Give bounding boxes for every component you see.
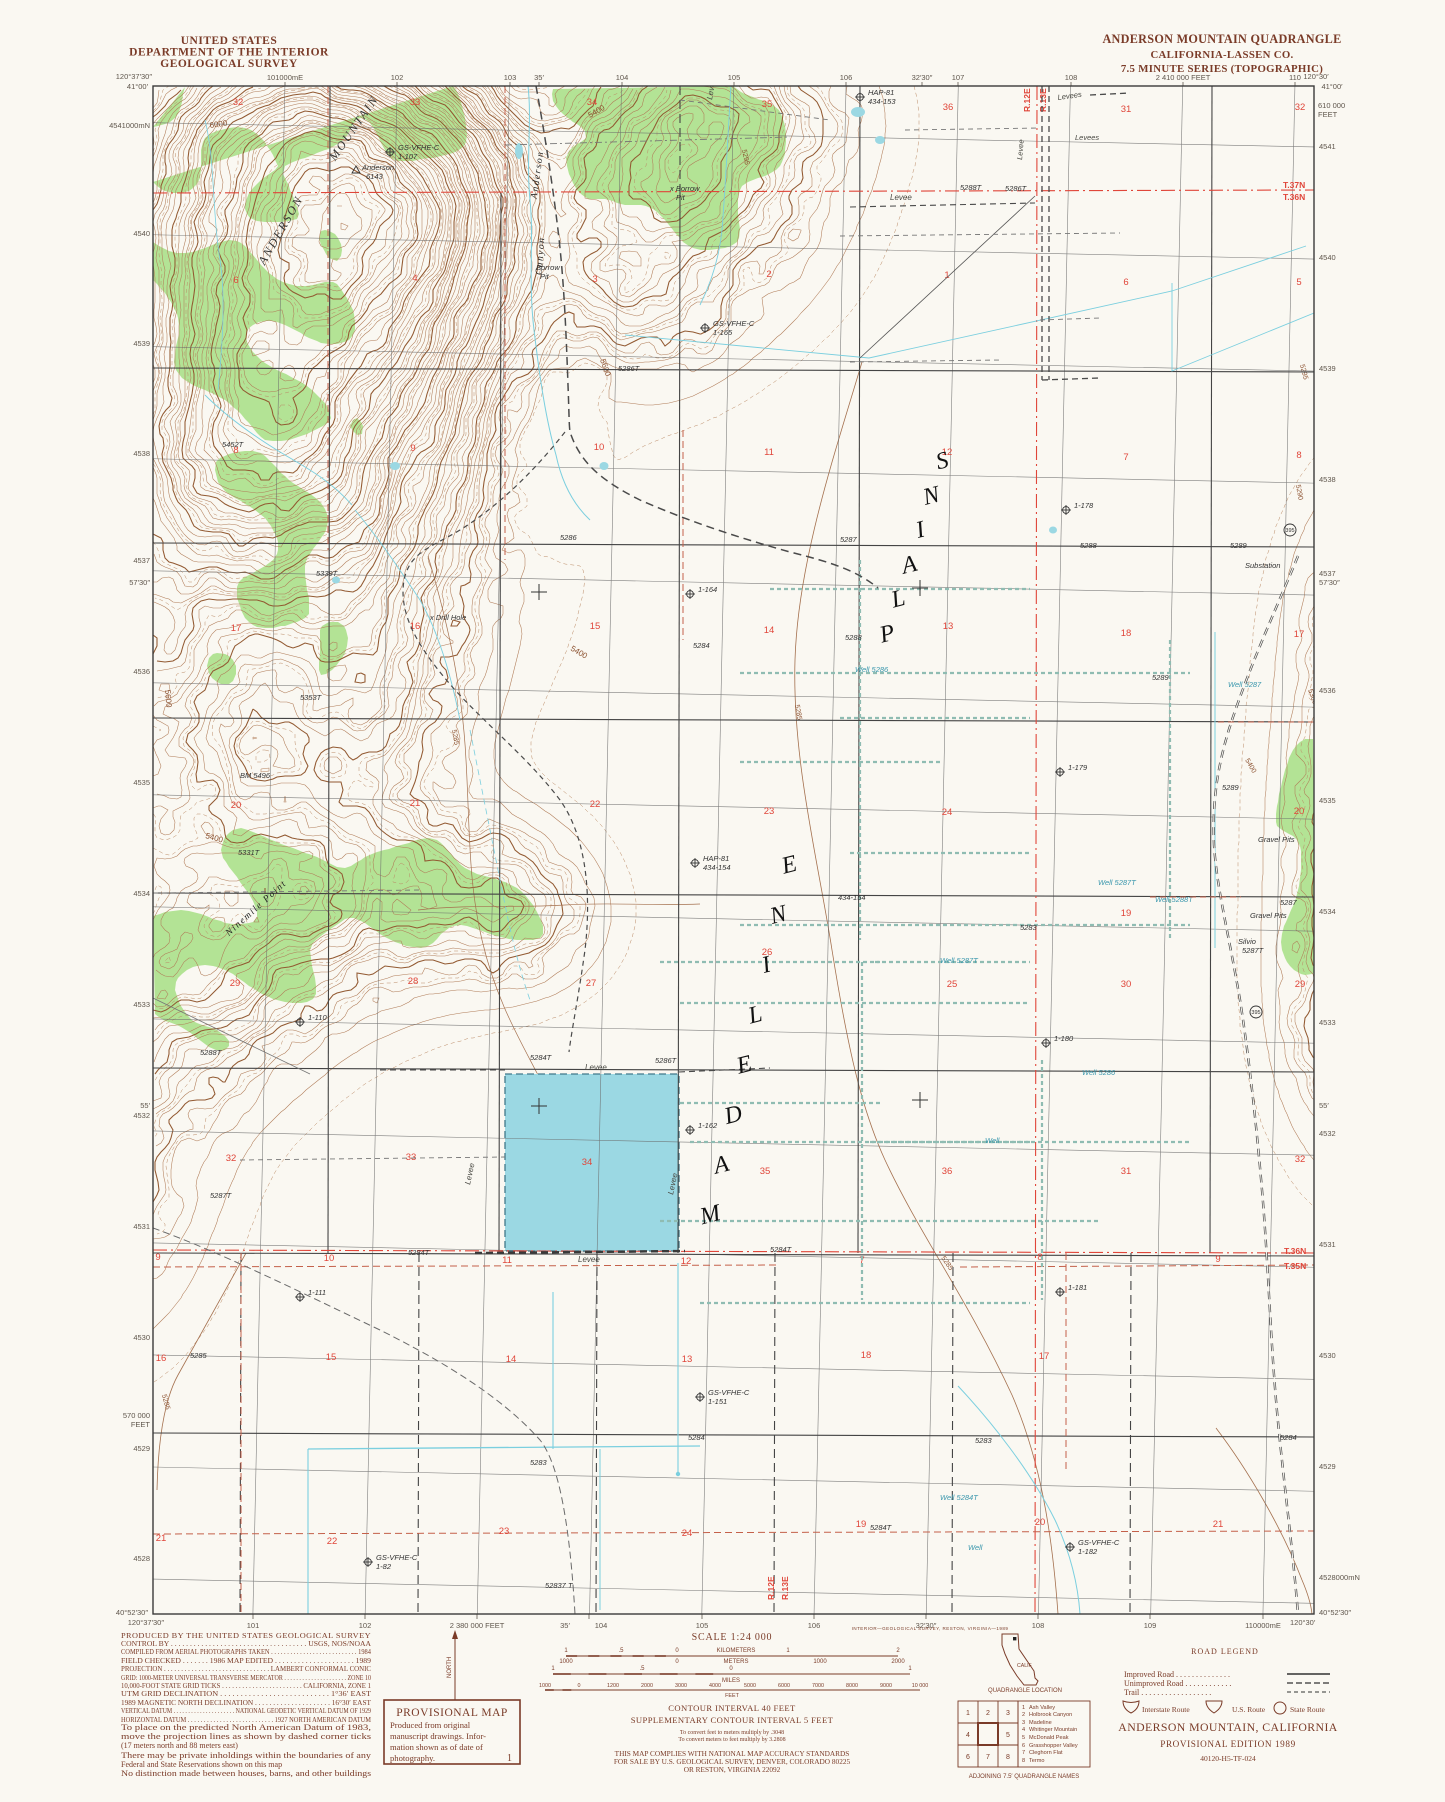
svg-text:6143: 6143 (366, 172, 384, 181)
svg-text:102: 102 (391, 73, 404, 82)
svg-text:5287: 5287 (1280, 898, 1298, 907)
svg-text:4540: 4540 (1319, 253, 1336, 262)
svg-text:3: 3 (1006, 1710, 1010, 1717)
svg-text:Levee: Levee (578, 1255, 600, 1264)
svg-text:Well 5288T: Well 5288T (1155, 895, 1194, 904)
svg-text:7: 7 (1022, 1750, 1025, 1756)
svg-text:434-153: 434-153 (868, 97, 896, 106)
svg-text:There may be private inholding: There may be private inholdings within t… (121, 1751, 371, 1760)
svg-text:4536: 4536 (1319, 686, 1336, 695)
svg-text:5289: 5289 (1222, 783, 1240, 792)
svg-text:MILES: MILES (722, 1678, 740, 1684)
svg-text:T.35N: T.35N (1284, 1261, 1306, 1271)
svg-text:2 380 000 FEET: 2 380 000 FEET (450, 1621, 505, 1630)
svg-text:Well 5284T: Well 5284T (940, 1493, 979, 1502)
svg-text:1-111: 1-111 (308, 1288, 326, 1297)
svg-text:5285: 5285 (190, 1351, 208, 1360)
svg-text:GS-VFHE-C: GS-VFHE-C (376, 1553, 418, 1562)
svg-text:T.37N: T.37N (1283, 180, 1305, 190)
svg-text:CALIFORNIA-LASSEN CO.: CALIFORNIA-LASSEN CO. (1150, 49, 1293, 61)
svg-text:1-162: 1-162 (698, 1121, 718, 1130)
svg-text:4529: 4529 (1319, 1462, 1336, 1471)
svg-text:photography.: photography. (390, 1753, 435, 1763)
svg-text:x Drill Hole: x Drill Hole (429, 613, 466, 622)
svg-text:110000mE: 110000mE (1245, 1621, 1281, 1630)
svg-text:To convert meters to feet mult: To convert meters to feet multiply by 3.… (678, 1736, 785, 1743)
svg-text:6000: 6000 (778, 1683, 790, 1689)
svg-text:T.36N: T.36N (1283, 192, 1305, 202)
svg-text:mation shown as of date of: mation shown as of date of (390, 1742, 483, 1752)
svg-text:5283: 5283 (530, 1458, 548, 1467)
svg-text:40°52′30″: 40°52′30″ (116, 1608, 148, 1617)
svg-text:Holbrook Canyon: Holbrook Canyon (1029, 1712, 1072, 1718)
svg-text:20: 20 (1294, 806, 1305, 817)
svg-text:5286T: 5286T (1005, 184, 1028, 193)
svg-text:x Borrow: x Borrow (669, 184, 700, 193)
svg-text:Interstate Route: Interstate Route (1142, 1705, 1190, 1714)
svg-text:1-180: 1-180 (1054, 1034, 1074, 1043)
svg-text:10: 10 (324, 1253, 335, 1264)
svg-text:5284T: 5284T (870, 1523, 893, 1532)
svg-text:395: 395 (1285, 528, 1294, 534)
svg-text:Borrow: Borrow (536, 263, 560, 272)
svg-text:No distinction made between ho: No distinction made between houses, barn… (121, 1769, 371, 1778)
svg-text:HAP-81: HAP-81 (703, 854, 729, 863)
svg-text:40120-H5-TF-024: 40120-H5-TF-024 (1200, 1754, 1256, 1763)
svg-text:104: 104 (616, 73, 629, 82)
svg-text:5286T: 5286T (655, 1056, 678, 1065)
svg-text:5288T: 5288T (960, 183, 983, 192)
svg-text:18: 18 (1121, 628, 1132, 639)
svg-text:2000: 2000 (891, 1659, 905, 1665)
svg-text:35: 35 (760, 1166, 771, 1177)
svg-text:22: 22 (590, 799, 601, 810)
svg-text:2: 2 (766, 269, 771, 280)
svg-text:33: 33 (410, 97, 421, 108)
svg-text:22: 22 (327, 1536, 338, 1547)
svg-text:UNITED STATES: UNITED STATES (181, 35, 278, 47)
svg-text:1-151: 1-151 (708, 1397, 727, 1406)
svg-text:4: 4 (966, 1732, 970, 1739)
svg-text:101000mE: 101000mE (267, 73, 303, 82)
svg-text:18: 18 (861, 1350, 872, 1361)
svg-text:16: 16 (156, 1353, 167, 1364)
svg-text:1-179: 1-179 (1068, 763, 1088, 772)
svg-text:GRID: 1000-METER UNIVERSAL TRA: GRID: 1000-METER UNIVERSAL TRANSVERSE ME… (121, 1675, 372, 1682)
svg-text:3000: 3000 (675, 1683, 687, 1689)
svg-text:4529: 4529 (133, 1444, 150, 1453)
svg-text:4535: 4535 (1319, 796, 1336, 805)
svg-text:GS-VFHE-C: GS-VFHE-C (398, 143, 440, 152)
svg-text:570 000: 570 000 (123, 1411, 150, 1420)
svg-text:5284T: 5284T (408, 1248, 431, 1257)
svg-text:106: 106 (808, 1621, 821, 1630)
svg-text:4: 4 (1022, 1727, 1025, 1733)
svg-text:5000: 5000 (744, 1683, 756, 1689)
svg-text:(17 meters north and 88 meters: (17 meters north and 88 meters east) (121, 1741, 238, 1750)
svg-text:1-165: 1-165 (713, 328, 733, 337)
svg-text:0: 0 (578, 1683, 581, 1689)
svg-text:13: 13 (943, 621, 954, 632)
svg-text:manuscript drawings. Infor-: manuscript drawings. Infor- (390, 1731, 486, 1741)
svg-text:Ash Valley: Ash Valley (1029, 1705, 1055, 1711)
svg-text:Well 5287T: Well 5287T (1098, 878, 1137, 887)
svg-text:57′30″: 57′30″ (129, 578, 150, 587)
svg-text:33: 33 (406, 1152, 417, 1163)
svg-text:6: 6 (233, 275, 238, 286)
svg-text:4000: 4000 (709, 1683, 721, 1689)
svg-text:GS-VFHE-C: GS-VFHE-C (713, 319, 755, 328)
svg-text:11: 11 (502, 1255, 512, 1266)
svg-text:4537: 4537 (133, 556, 150, 565)
svg-text:1-182: 1-182 (1078, 1547, 1098, 1556)
svg-text:QUADRANGLE LOCATION: QUADRANGLE LOCATION (988, 1688, 1062, 1694)
svg-text:34: 34 (587, 97, 598, 108)
svg-text:27: 27 (586, 978, 597, 989)
svg-text:5283: 5283 (975, 1436, 993, 1445)
svg-text:3: 3 (1022, 1720, 1025, 1726)
svg-text:Grasshopper Valley: Grasshopper Valley (1029, 1743, 1078, 1749)
svg-text:5283: 5283 (1020, 923, 1038, 932)
svg-text:PROVISIONAL EDITION 1989: PROVISIONAL EDITION 1989 (1160, 1739, 1296, 1749)
svg-text:13: 13 (682, 1354, 693, 1365)
svg-text:5: 5 (1296, 277, 1301, 288)
svg-text:21: 21 (1213, 1519, 1224, 1530)
svg-text:5600: 5600 (163, 689, 174, 708)
svg-text:395: 395 (1251, 1010, 1260, 1016)
svg-text:15: 15 (590, 621, 601, 632)
svg-text:U.S. Route: U.S. Route (1232, 1705, 1266, 1714)
svg-text:107: 107 (952, 73, 965, 82)
svg-text:R.12E: R.12E (1022, 88, 1032, 112)
svg-text:CONTROL BY . . . . . . . . . .: CONTROL BY . . . . . . . . . . . . . . .… (121, 1641, 371, 1648)
svg-text:State Route: State Route (1290, 1705, 1325, 1714)
svg-text:BM 5496: BM 5496 (240, 771, 271, 780)
svg-text:34: 34 (582, 1157, 593, 1168)
svg-text:To convert feet to meters mult: To convert feet to meters multiply by .3… (680, 1729, 784, 1736)
svg-text:23: 23 (499, 1526, 510, 1537)
svg-text:20: 20 (231, 800, 242, 811)
svg-text:Silvio: Silvio (1238, 937, 1256, 946)
svg-text:Gravel Pits: Gravel Pits (1250, 911, 1287, 920)
svg-text:SCALE 1:24 000: SCALE 1:24 000 (692, 1632, 773, 1643)
svg-text:6: 6 (1022, 1743, 1025, 1749)
svg-text:32: 32 (226, 1153, 237, 1164)
svg-text:35′: 35′ (534, 73, 544, 82)
svg-text:14: 14 (506, 1354, 517, 1365)
svg-text:25: 25 (947, 979, 958, 990)
svg-text:120°30′: 120°30′ (1303, 72, 1329, 81)
svg-text:41°00′: 41°00′ (127, 82, 149, 91)
svg-text:Trail . . . . . . . . . . . .: Trail . . . . . . . . . . . . . . . . . … (1124, 1688, 1211, 1697)
svg-text:8000: 8000 (846, 1683, 858, 1689)
svg-text:PROJECTION . . . . . . . . . .: PROJECTION . . . . . . . . . . . . . . .… (121, 1666, 371, 1673)
svg-text:29: 29 (230, 978, 241, 989)
svg-text:Substation: Substation (1245, 561, 1280, 570)
svg-text:31: 31 (1121, 1166, 1132, 1177)
svg-text:14: 14 (764, 625, 775, 636)
svg-text:FIELD CHECKED . . . . . . . 19: FIELD CHECKED . . . . . . . 1986 MAP EDI… (121, 1658, 372, 1665)
svg-text:55′: 55′ (1319, 1101, 1329, 1110)
svg-text:CALIF: CALIF (1017, 1663, 1032, 1669)
svg-text:1000: 1000 (559, 1659, 573, 1665)
svg-text:120°30′: 120°30′ (1290, 1618, 1316, 1627)
svg-text:21: 21 (410, 798, 421, 809)
svg-text:5284: 5284 (1280, 1433, 1297, 1442)
svg-text:4533: 4533 (133, 1000, 150, 1009)
svg-text:4535: 4535 (133, 778, 150, 787)
svg-text:CONTOUR INTERVAL 40 FEET: CONTOUR INTERVAL 40 FEET (668, 1703, 796, 1713)
svg-text:23: 23 (764, 806, 775, 817)
svg-text:4536: 4536 (133, 667, 150, 676)
svg-text:17: 17 (1294, 629, 1305, 640)
svg-text:ADJOINING 7.5′ QUADRANGLE NAME: ADJOINING 7.5′ QUADRANGLE NAMES (969, 1774, 1079, 1780)
svg-text:10: 10 (594, 442, 605, 453)
svg-text:120°37′30″: 120°37′30″ (128, 1618, 165, 1627)
svg-text:101: 101 (247, 1621, 260, 1630)
svg-text:4528: 4528 (133, 1554, 150, 1563)
svg-text:Levee: Levee (1015, 139, 1026, 160)
svg-text:Well 5286: Well 5286 (1082, 1068, 1116, 1077)
svg-text:4541000mN: 4541000mN (109, 121, 150, 130)
svg-text:20: 20 (1035, 1517, 1046, 1528)
svg-text:31: 31 (1121, 104, 1132, 115)
svg-text:4539: 4539 (133, 339, 150, 348)
svg-text:Levees: Levees (1075, 133, 1099, 142)
svg-text:103: 103 (504, 73, 517, 82)
svg-text:1-107: 1-107 (398, 152, 418, 161)
svg-text:1: 1 (966, 1710, 970, 1717)
svg-text:GS-VFHE-C: GS-VFHE-C (1078, 1538, 1120, 1547)
svg-text:35′: 35′ (560, 1621, 570, 1630)
svg-text:32: 32 (1295, 102, 1306, 113)
svg-text:30: 30 (1121, 979, 1132, 990)
svg-text:5: 5 (1006, 1732, 1010, 1739)
svg-text:R.12E: R.12E (766, 1576, 776, 1600)
svg-text:VERTICAL DATUM . . . . . . . .: VERTICAL DATUM . . . . . . . . . . . . .… (121, 1708, 372, 1715)
svg-text:Anderson: Anderson (361, 163, 394, 172)
svg-text:4528000mN: 4528000mN (1319, 1573, 1360, 1582)
svg-text:9: 9 (410, 443, 415, 454)
svg-text:5288: 5288 (1080, 541, 1098, 550)
svg-text:4532: 4532 (1319, 1129, 1336, 1138)
svg-text:Well 5286: Well 5286 (855, 665, 889, 674)
svg-text:32′30″: 32′30″ (912, 73, 933, 82)
svg-text:1000: 1000 (813, 1659, 827, 1665)
svg-text:METERS: METERS (723, 1659, 748, 1665)
svg-text:ANDERSON MOUNTAIN QUADRANGLE: ANDERSON MOUNTAIN QUADRANGLE (1102, 32, 1341, 46)
svg-text:4538: 4538 (133, 449, 150, 458)
svg-text:7000: 7000 (812, 1683, 824, 1689)
svg-text:2000: 2000 (641, 1683, 653, 1689)
svg-text:24: 24 (682, 1528, 693, 1539)
svg-text:4531: 4531 (133, 1222, 150, 1231)
svg-text:5289: 5289 (1230, 541, 1248, 550)
svg-text:5452T: 5452T (222, 440, 245, 449)
svg-text:Levee: Levee (890, 193, 912, 202)
svg-text:NORTH: NORTH (447, 1657, 453, 1678)
svg-text:35: 35 (762, 99, 773, 110)
svg-text:SUPPLEMENTARY CONTOUR INTERVAL: SUPPLEMENTARY CONTOUR INTERVAL 5 FEET (631, 1715, 834, 1725)
svg-text:1200: 1200 (607, 1683, 619, 1689)
svg-text:104: 104 (595, 1621, 608, 1630)
svg-text:21: 21 (156, 1533, 167, 1544)
svg-text:.5: .5 (618, 1648, 624, 1654)
svg-text:GEOLOGICAL SURVEY: GEOLOGICAL SURVEY (160, 58, 298, 70)
svg-text:4530: 4530 (133, 1333, 150, 1342)
svg-text:HAP-81: HAP-81 (868, 88, 894, 97)
svg-text:8: 8 (1022, 1758, 1025, 1764)
svg-text:GS-VFHE-C: GS-VFHE-C (708, 1388, 750, 1397)
svg-text:7: 7 (986, 1754, 990, 1761)
svg-text:Unimproved Road . . . . . . .: Unimproved Road . . . . . . . . . . . . (1124, 1679, 1231, 1688)
svg-text:4534: 4534 (1319, 907, 1336, 916)
svg-text:FEET: FEET (725, 1693, 739, 1699)
svg-text:41°00′: 41°00′ (1321, 82, 1343, 91)
svg-text:Pit: Pit (540, 272, 550, 281)
svg-text:4: 4 (412, 273, 417, 284)
svg-text:5284T: 5284T (530, 1053, 553, 1062)
svg-text:10 000: 10 000 (912, 1683, 929, 1689)
svg-text:5284: 5284 (688, 1433, 705, 1442)
svg-text:Termo: Termo (1029, 1758, 1045, 1764)
svg-text:DEPARTMENT OF THE INTERIOR: DEPARTMENT OF THE INTERIOR (129, 47, 329, 59)
svg-text:55′: 55′ (140, 1101, 150, 1110)
svg-text:Madeline: Madeline (1029, 1720, 1052, 1726)
svg-text:2: 2 (986, 1710, 990, 1717)
svg-text:4533: 4533 (1319, 1018, 1336, 1027)
svg-text:3: 3 (592, 274, 597, 285)
svg-text:ROAD LEGEND: ROAD LEGEND (1191, 1647, 1259, 1656)
svg-text:Well: Well (985, 1136, 1000, 1145)
svg-text:24: 24 (942, 807, 953, 818)
svg-text:4532: 4532 (133, 1111, 150, 1120)
svg-text:36: 36 (943, 102, 954, 113)
svg-text:2 410 000 FEET: 2 410 000 FEET (1156, 73, 1211, 82)
svg-text:1-181: 1-181 (1068, 1283, 1087, 1292)
svg-text:1-82: 1-82 (376, 1562, 392, 1571)
svg-text:28: 28 (408, 976, 419, 987)
svg-text:52837 T: 52837 T (545, 1581, 574, 1590)
svg-text:5289: 5289 (1152, 673, 1170, 682)
svg-text:Federal and State Reservations: Federal and State Reservations shown on … (121, 1760, 282, 1769)
svg-text:17: 17 (231, 623, 242, 634)
svg-text:32: 32 (1295, 1154, 1306, 1165)
svg-text:1989 MAGNETIC NORTH DECLINATIO: 1989 MAGNETIC NORTH DECLINATION . . . . … (121, 1700, 372, 1707)
svg-text:5286: 5286 (560, 533, 578, 542)
svg-text:1000: 1000 (539, 1683, 551, 1689)
svg-text:ANDERSON MOUNTAIN, CALIFORNIA: ANDERSON MOUNTAIN, CALIFORNIA (1118, 1720, 1337, 1734)
svg-text:4530: 4530 (1319, 1351, 1336, 1360)
svg-text:Produced from original: Produced from original (390, 1720, 471, 1730)
svg-text:To place on the predicted Nort: To place on the predicted North American… (121, 1723, 371, 1732)
svg-text:5288T: 5288T (200, 1048, 223, 1057)
svg-text:105: 105 (728, 73, 741, 82)
svg-text:11: 11 (764, 447, 774, 458)
svg-text:8: 8 (1006, 1754, 1010, 1761)
svg-text:5339T: 5339T (316, 569, 339, 578)
svg-text:1-110: 1-110 (308, 1013, 327, 1022)
svg-text:4541: 4541 (1319, 142, 1336, 151)
svg-text:108: 108 (1065, 73, 1078, 82)
svg-text:Pit: Pit (676, 193, 686, 202)
svg-text:9000: 9000 (880, 1683, 892, 1689)
svg-text:5287T: 5287T (1242, 946, 1265, 955)
svg-text:12: 12 (681, 1256, 692, 1267)
svg-text:COMPILED FROM AERIAL PHOTOGRAP: COMPILED FROM AERIAL PHOTOGRAPHS TAKEN .… (121, 1649, 372, 1656)
svg-text:move the projection lines as s: move the projection lines as shown by da… (121, 1732, 371, 1741)
svg-text:Well 5287T: Well 5287T (940, 956, 979, 965)
svg-text:9: 9 (1215, 1254, 1220, 1265)
svg-text:5287: 5287 (840, 535, 858, 544)
svg-text:2: 2 (1022, 1712, 1025, 1718)
svg-text:1: 1 (1022, 1705, 1025, 1711)
svg-text:29: 29 (1295, 979, 1306, 990)
svg-text:7: 7 (1123, 452, 1128, 463)
svg-text:102: 102 (359, 1621, 372, 1630)
svg-text:FEET: FEET (131, 1420, 151, 1429)
svg-text:17: 17 (1039, 1351, 1050, 1362)
svg-text:1: 1 (507, 1753, 512, 1764)
svg-text:19: 19 (856, 1519, 867, 1530)
svg-text:5: 5 (1022, 1735, 1025, 1741)
svg-text:5331T: 5331T (238, 848, 261, 857)
svg-text:5286T: 5286T (618, 364, 641, 373)
svg-text:4537: 4537 (1319, 569, 1336, 578)
svg-text:108: 108 (1032, 1621, 1045, 1630)
svg-text:4538: 4538 (1319, 475, 1336, 484)
svg-text:McDonald Peak: McDonald Peak (1029, 1735, 1069, 1741)
svg-text:15: 15 (326, 1352, 337, 1363)
svg-text:Whitinger Mountain: Whitinger Mountain (1029, 1727, 1077, 1733)
svg-text:5353T: 5353T (300, 693, 323, 702)
svg-text:T.36N: T.36N (1284, 1246, 1306, 1256)
svg-text:40°52′30″: 40°52′30″ (1319, 1608, 1351, 1617)
svg-text:R.13E: R.13E (780, 1576, 790, 1600)
svg-text:6: 6 (1123, 277, 1128, 288)
svg-text:Cleghorn Flat: Cleghorn Flat (1029, 1750, 1063, 1756)
svg-text:57′30″: 57′30″ (1319, 578, 1340, 587)
svg-text:1-164: 1-164 (698, 585, 717, 594)
svg-text:19: 19 (1121, 908, 1132, 919)
svg-text:120°37′30″: 120°37′30″ (116, 72, 153, 81)
svg-text:Gravel Pits: Gravel Pits (1258, 835, 1295, 844)
svg-text:110: 110 (1289, 73, 1301, 82)
svg-text:6: 6 (966, 1754, 970, 1761)
svg-text:4540: 4540 (133, 229, 150, 238)
svg-text:32: 32 (233, 97, 244, 108)
svg-text:36: 36 (942, 1166, 953, 1177)
svg-text:Levee: Levee (585, 1063, 607, 1072)
svg-text:8: 8 (1296, 450, 1301, 461)
svg-text:KILOMETERS: KILOMETERS (717, 1648, 756, 1654)
svg-text:5288: 5288 (845, 633, 863, 642)
svg-text:1-178: 1-178 (1074, 501, 1094, 510)
svg-text:Improved Road . . . . . . . .: Improved Road . . . . . . . . . . . . . … (1124, 1670, 1230, 1679)
svg-text:.5: .5 (639, 1666, 645, 1672)
svg-text:5284: 5284 (693, 641, 710, 650)
svg-text:PRODUCED BY THE UNITED STATES: PRODUCED BY THE UNITED STATES GEOLOGICAL… (121, 1631, 371, 1640)
svg-text:R.13E: R.13E (1038, 88, 1048, 112)
svg-text:5287T: 5287T (210, 1191, 233, 1200)
svg-text:105: 105 (696, 1621, 709, 1630)
svg-text:FEET: FEET (1318, 110, 1338, 119)
svg-text:5284T: 5284T (770, 1245, 793, 1254)
svg-text:4534: 4534 (133, 889, 150, 898)
svg-text:INTERIOR—GEOLOGICAL SURVEY, RE: INTERIOR—GEOLOGICAL SURVEY, RESTON, VIRG… (852, 1626, 1009, 1631)
svg-text:10,000-FOOT STATE GRID TICKS .: 10,000-FOOT STATE GRID TICKS . . . . . .… (121, 1683, 371, 1690)
svg-text:109: 109 (1144, 1621, 1157, 1630)
